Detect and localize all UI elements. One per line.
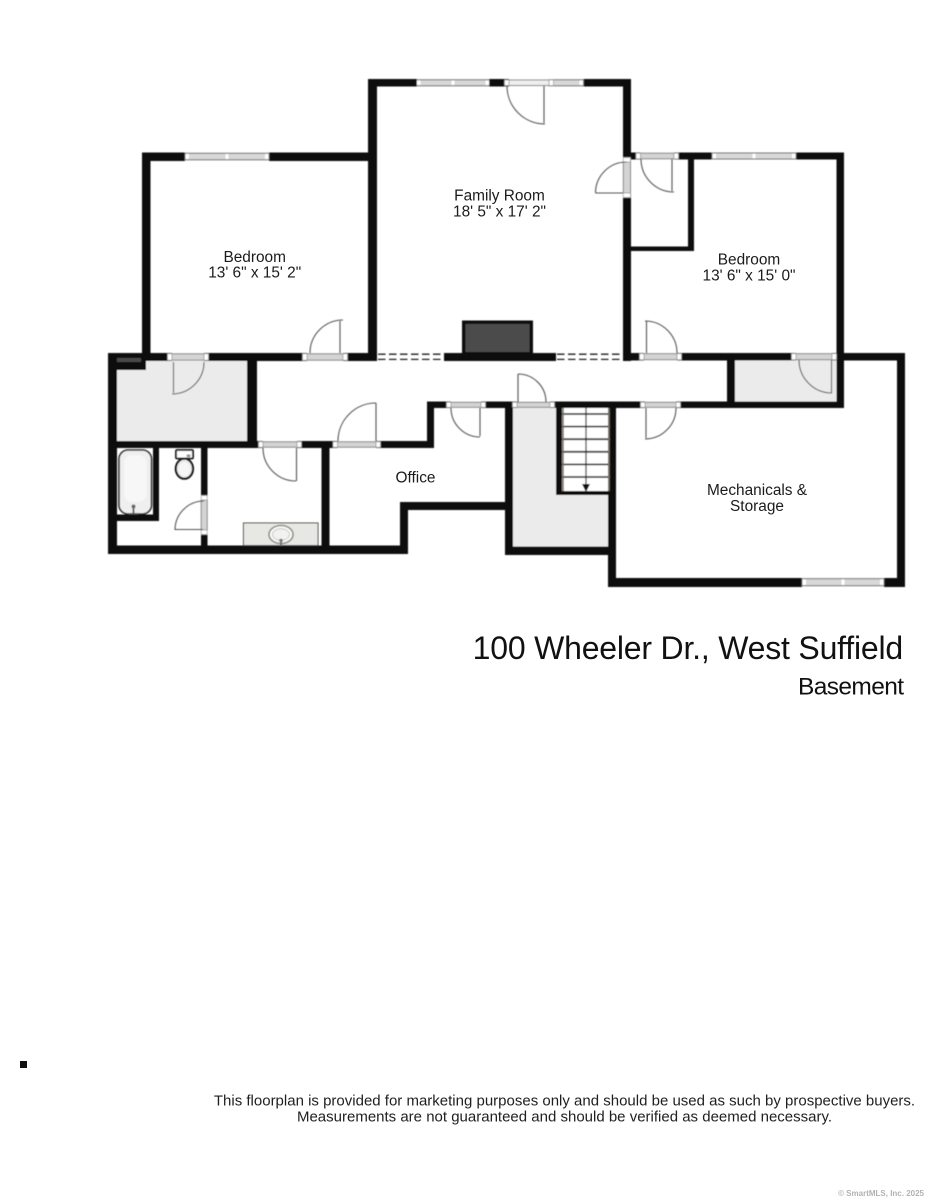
svg-text:13' 6" x 15' 0": 13' 6" x 15' 0": [703, 267, 796, 284]
svg-text:Family Room: Family Room: [454, 188, 545, 205]
svg-text:Basement: Basement: [798, 674, 904, 701]
svg-text:18' 5" x 17' 2": 18' 5" x 17' 2": [453, 203, 546, 220]
svg-text:© SmartMLS, Inc. 2025: © SmartMLS, Inc. 2025: [838, 1189, 924, 1198]
svg-text:Office: Office: [396, 469, 436, 486]
svg-text:13' 6" x 15' 2": 13' 6" x 15' 2": [208, 265, 301, 282]
svg-text:Storage: Storage: [730, 498, 784, 515]
svg-text:Measurements are not guarantee: Measurements are not guaranteed and shou…: [297, 1108, 832, 1125]
svg-text:Bedroom: Bedroom: [718, 252, 780, 269]
svg-text:Mechanicals &: Mechanicals &: [707, 482, 808, 499]
svg-text:100 Wheeler Dr., West Suffield: 100 Wheeler Dr., West Suffield: [473, 630, 903, 666]
svg-text:This floorplan is provided for: This floorplan is provided for marketing…: [214, 1092, 915, 1109]
svg-text:Bedroom: Bedroom: [223, 249, 285, 266]
